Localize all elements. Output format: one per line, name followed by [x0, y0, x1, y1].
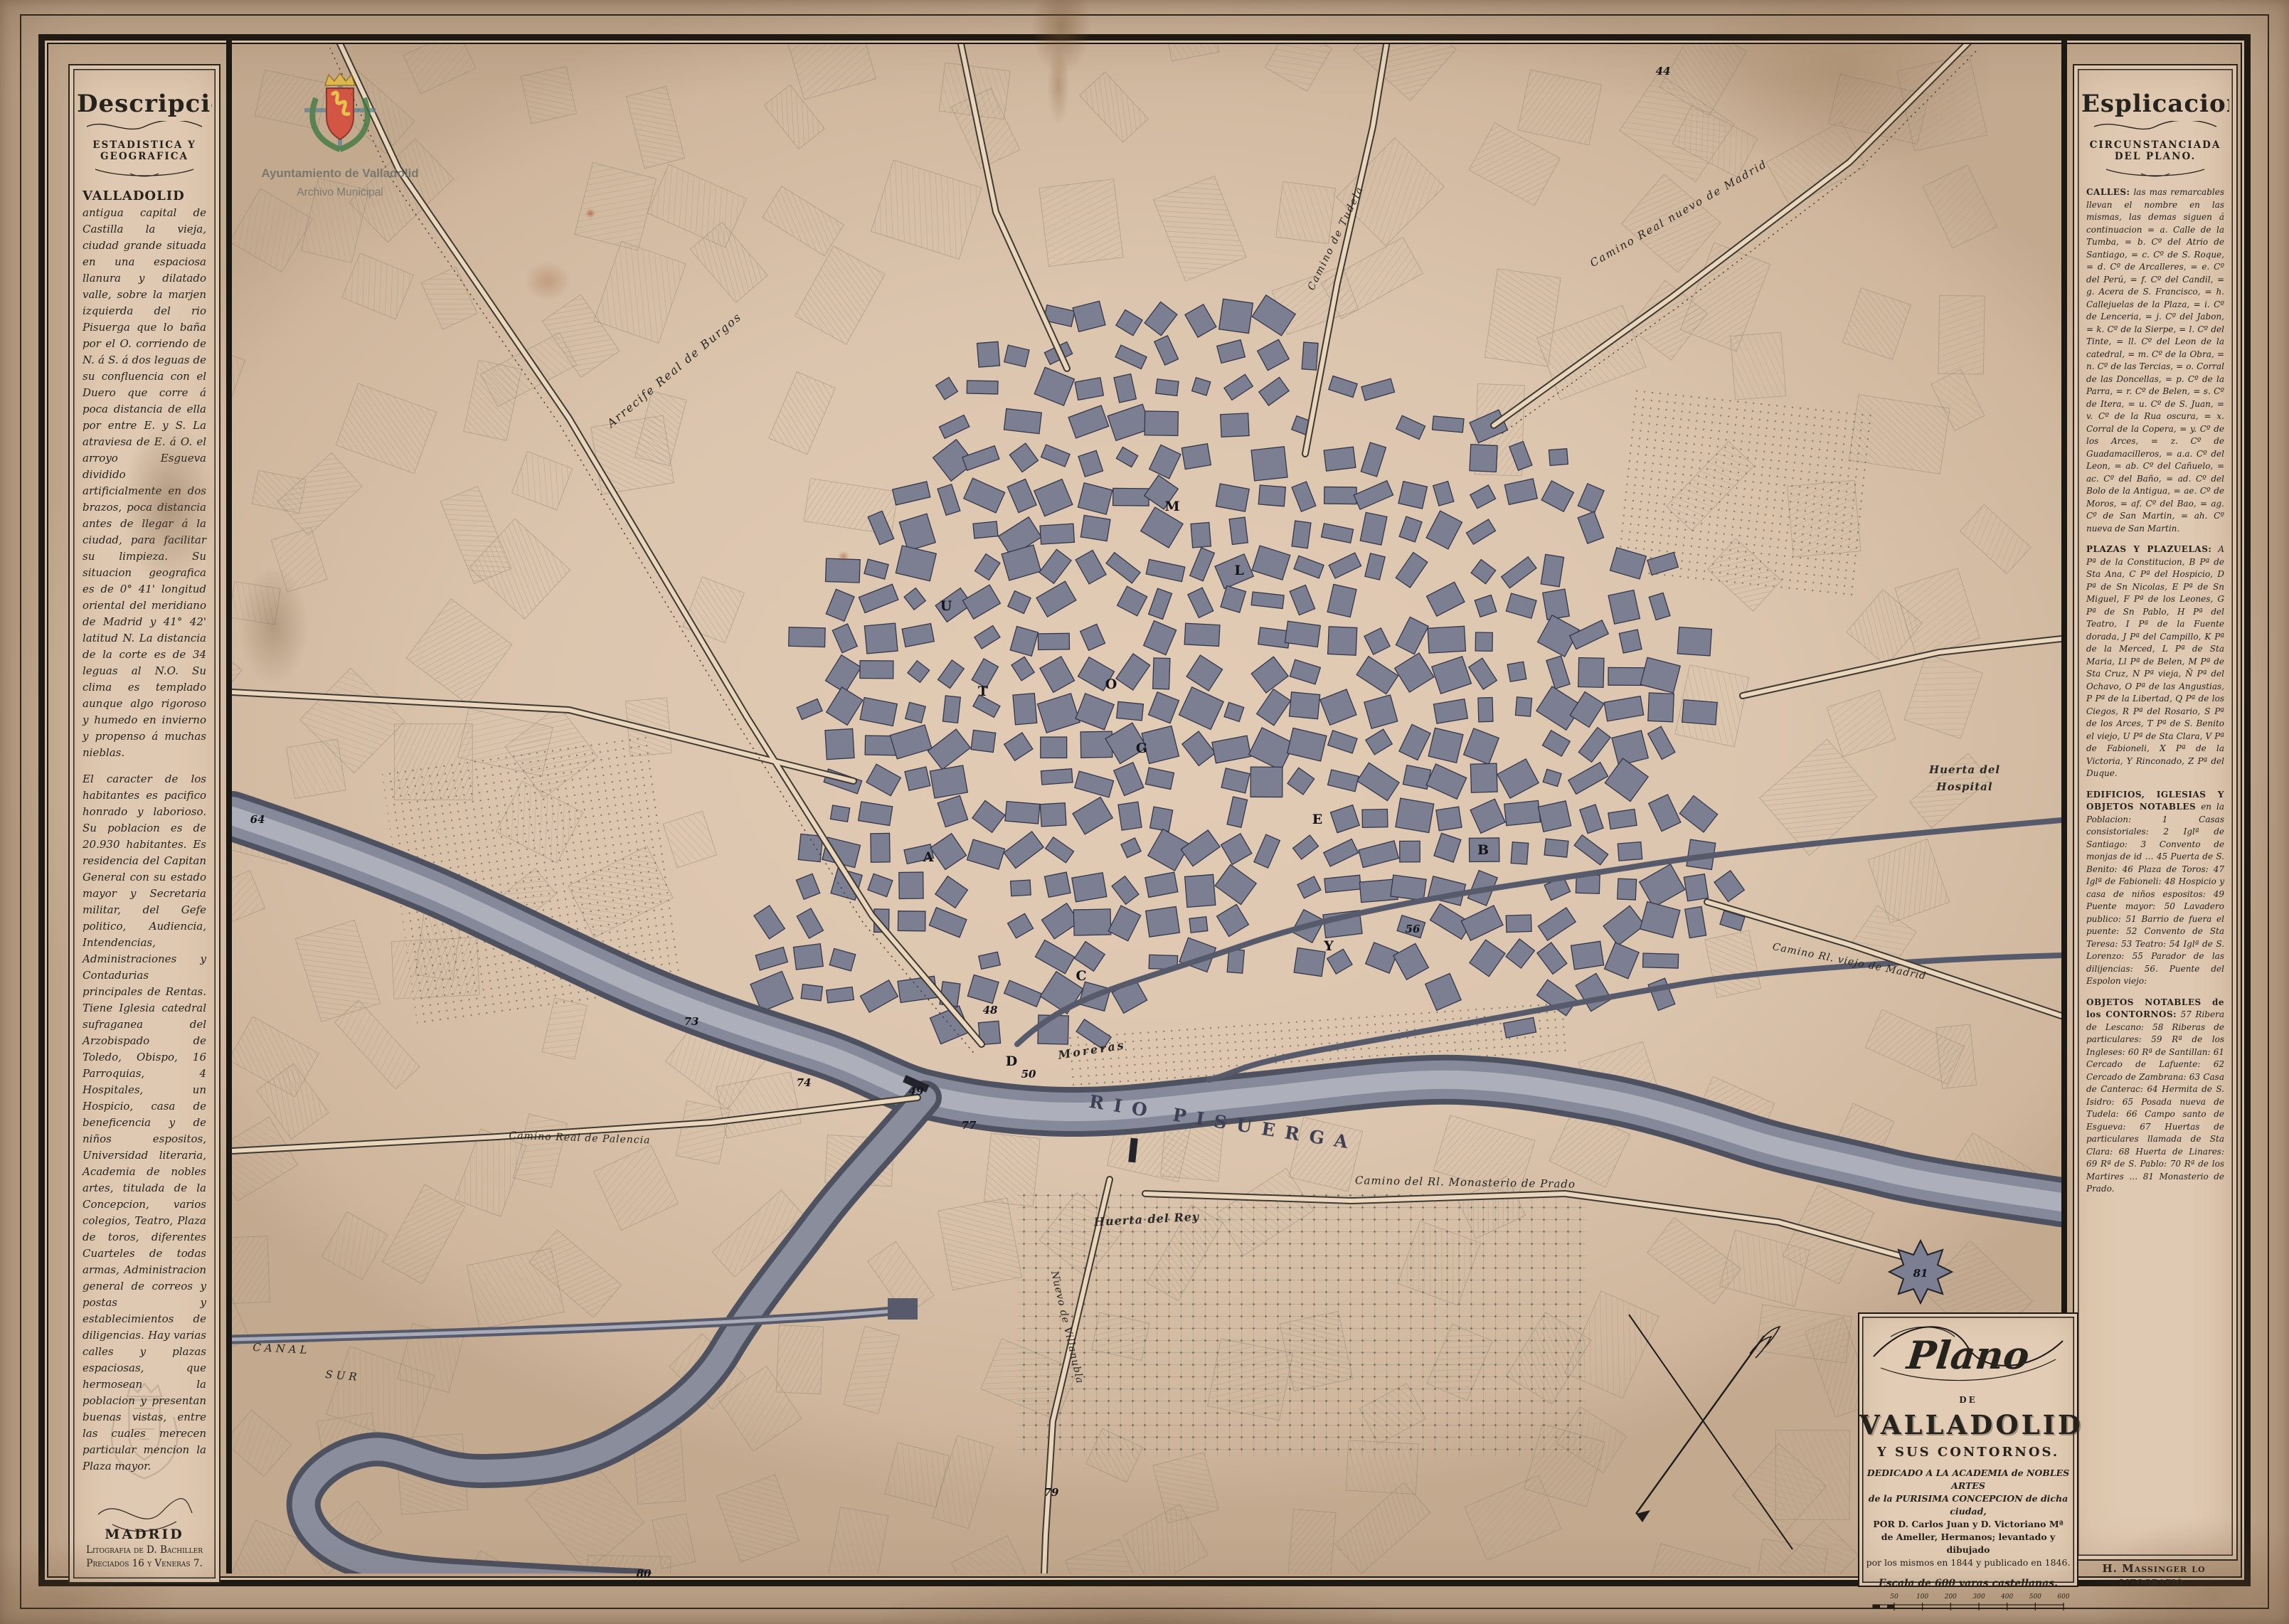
left-panel-text-2: El caracter de los habitantes es pacific…	[77, 761, 212, 1475]
legend-streets: CALLES: las mas remarcables llevan el no…	[2081, 178, 2229, 535]
legend-plazas: PLAZAS Y PLAZUELAS: A Pª de la Constituc…	[2081, 535, 2229, 780]
buildings-list: en la Poblacion: 1 Casas consistoriales:…	[2086, 802, 2224, 986]
scale-tick-label: 400	[2001, 1593, 2013, 1601]
map-sheet: Descripcion ESTADISTICA Y GEOGRAFICA VAL…	[0, 0, 2289, 1624]
title-script-block: Plano	[1859, 1314, 2077, 1394]
flourish-ornament	[2091, 121, 2219, 132]
title-subtitle: Y SUS CONTORNOS.	[1859, 1445, 2077, 1460]
plazas-heading: PLAZAS Y PLAZUELAS:	[2086, 544, 2211, 554]
dedication-line5: por los mismos en 1844 y publicado en 18…	[1859, 1556, 2077, 1569]
legend-surroundings: OBJETOS NOTABLES de los CONTORNOS: 57 Ri…	[2081, 988, 2229, 1196]
flourish-ornament	[91, 165, 198, 178]
dedication-line1: DEDICADO A LA ACADEMIA de NOBLES ARTES	[1859, 1467, 2077, 1492]
scale-tick-label: 200	[1945, 1593, 1957, 1601]
legend-panel: Esplicacion CIRCUNSTANCIADA DEL PLANO. C…	[2073, 64, 2238, 1561]
streets-heading: CALLES:	[2086, 187, 2130, 197]
title-script: Plano	[1857, 1332, 2080, 1378]
imprint-address: Preciados 16 y Veneras 7.	[77, 1558, 212, 1569]
imprint-block: MADRID Litografia de D. Bachiller Precia…	[77, 1527, 212, 1569]
imprint-city: MADRID	[77, 1527, 212, 1542]
title-cartouche: Plano DE VALLADOLID Y SUS CONTORNOS. DED…	[1858, 1312, 2078, 1587]
description-panel: Descripcion ESTADISTICA Y GEOGRAFICA VAL…	[68, 64, 221, 1583]
lithographer-credit: H. Massinger lo litografió.	[2073, 1562, 2235, 1588]
right-panel-subtitle: CIRCUNSTANCIADA DEL PLANO.	[2081, 139, 2229, 162]
right-panel-title: Esplicacion	[2081, 90, 2229, 118]
surroundings-list: 57 Ribera de Lescano: 58 Riberas de part…	[2086, 1009, 2224, 1194]
paragraph-1: antigua capital de Castilla la vieja, ci…	[83, 206, 206, 759]
title-de: DE	[1859, 1395, 2077, 1405]
title-city: VALLADOLID	[1859, 1409, 2077, 1440]
legend-buildings: EDIFICIOS, IGLESIAS Y OBJETOS NOTABLES e…	[2081, 780, 2229, 988]
dedication-block: DEDICADO A LA ACADEMIA de NOBLES ARTES d…	[1859, 1467, 2077, 1569]
paragraph-2: El caracter de los habitantes es pacific…	[83, 773, 206, 1472]
embossed-crest	[102, 1383, 187, 1490]
scale-bar: 50100200300400500600	[1871, 1593, 2065, 1612]
left-panel-title: Descripcion	[77, 90, 212, 118]
streets-list: las mas remarcables llevan el nombre en …	[2086, 187, 2224, 534]
scale-bar-rule	[1871, 1602, 2065, 1612]
scale-tick-label: 100	[1916, 1593, 1928, 1601]
dedication-line3: POR D. Carlos Juan y D. Victoriano Mª	[1859, 1518, 2077, 1531]
dedication-line4: de Ameller, Hermanos; levantado y dibuja…	[1859, 1531, 2077, 1556]
scale-tick-label: 50	[1890, 1593, 1898, 1601]
imprint-lithographer: Litografia de D. Bachiller	[77, 1544, 212, 1556]
lead-word: VALLADOLID	[83, 189, 185, 203]
left-panel-separator	[226, 41, 232, 1573]
left-panel-subtitle: ESTADISTICA Y GEOGRAFICA	[77, 139, 212, 162]
scale-tick-label: 600	[2057, 1593, 2069, 1601]
flourish-ornament	[2102, 165, 2209, 178]
flourish-ornament	[84, 121, 205, 132]
dedication-line2: de la PURISIMA CONCEPCION de dicha ciuda…	[1859, 1492, 2077, 1518]
left-panel-text: VALLADOLID antigua capital de Castilla l…	[77, 178, 212, 761]
scale-tick-label: 500	[2029, 1593, 2041, 1601]
plazas-list: A Pª de la Constitucion, B Pª de Sta Ana…	[2086, 544, 2224, 778]
scale-label: Escala de 600 varas castellanas.	[1859, 1578, 2077, 1589]
scale-tick-label: 300	[1972, 1593, 1985, 1601]
